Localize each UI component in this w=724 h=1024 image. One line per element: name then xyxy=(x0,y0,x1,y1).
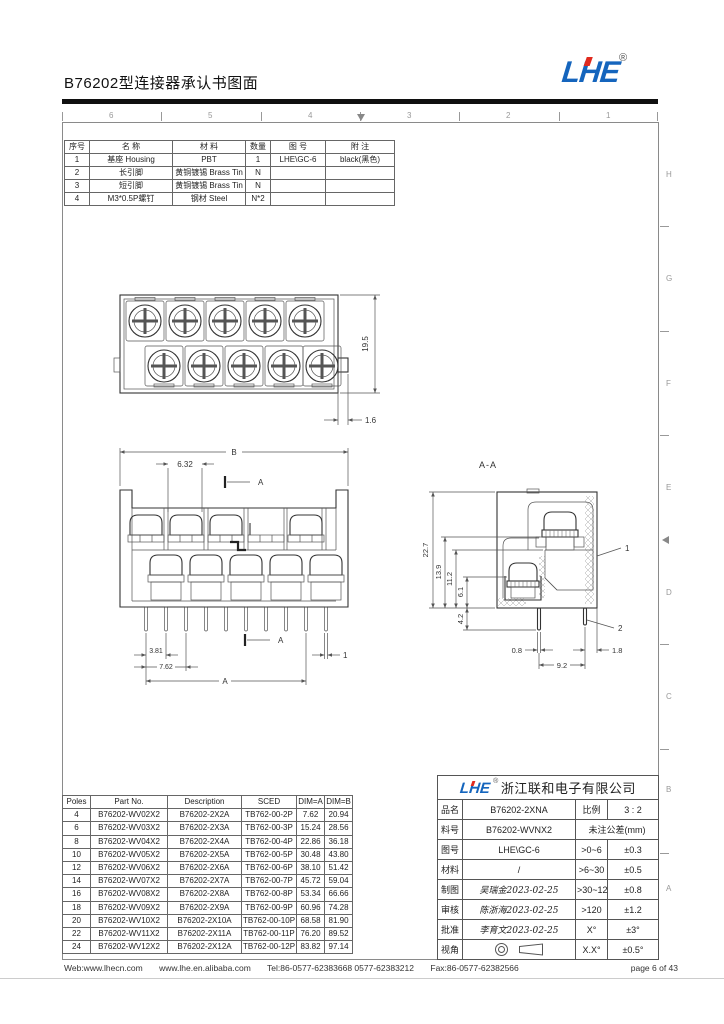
terminal-row-top xyxy=(128,515,324,542)
column-header: Poles xyxy=(63,796,91,809)
title-block-row: 料号 B76202-WVNX2 未注公差(mm) xyxy=(438,820,659,840)
dimension-label: 9.2 xyxy=(557,661,567,670)
table-cell: 97.14 xyxy=(325,941,353,954)
table-cell: B76202-2X4A xyxy=(168,835,242,848)
tolerance-range: >0~6 xyxy=(576,840,608,860)
table-cell: 20.94 xyxy=(325,809,353,822)
zone-label-top: 3 xyxy=(407,111,411,120)
table-row: 4B76202-WV02X2B76202-2X2ATB762-00-2P7.62… xyxy=(63,809,353,822)
table-cell: TB762-00-9P xyxy=(242,901,297,914)
title-block-row: 审核 陈浙海2023-02-25 >120 ±1.2 xyxy=(438,900,659,920)
zone-tick xyxy=(660,749,669,750)
table-cell: 43.80 xyxy=(325,848,353,861)
field-label: 制图 xyxy=(438,880,463,900)
zone-tick xyxy=(660,226,669,227)
column-header: Description xyxy=(168,796,242,809)
table-cell: TB762-00-10P xyxy=(242,914,297,927)
dimension-label: 22.7 xyxy=(421,543,430,558)
top-view-drawing: 19.5 1.6 xyxy=(98,278,398,438)
table-cell: M3*0.5P螺钉 xyxy=(90,193,173,206)
table-cell: 长引脚 xyxy=(90,167,173,180)
poles-table: PolesPart No.DescriptionSCEDDIM=ADIM=B 4… xyxy=(62,795,353,954)
company-logo: LHE® xyxy=(562,56,662,96)
table-cell: 基座 Housing xyxy=(90,154,173,167)
table-cell: N xyxy=(246,180,271,193)
table-cell: B76202-2X7A xyxy=(168,875,242,888)
tolerance-range: >6~30 xyxy=(576,860,608,880)
dimension-label: 6.32 xyxy=(177,460,193,469)
table-cell: 22 xyxy=(63,927,91,940)
table-cell: 1 xyxy=(65,154,90,167)
bom-table: 序号名 称材 料数量图 号附 注 1基座 HousingPBT1LHE\GC-6… xyxy=(64,140,395,206)
table-cell: B76202-WV10X2 xyxy=(91,914,168,927)
bom-header-row: 序号名 称材 料数量图 号附 注 xyxy=(65,141,395,154)
scale-value: 3 : 2 xyxy=(608,800,659,820)
table-cell: 4 xyxy=(65,193,90,206)
title-block-row: 图号 LHE\GC-6 >0~6 ±0.3 xyxy=(438,840,659,860)
table-cell xyxy=(271,167,326,180)
table-row: 24B76202-WV12X2B76202-2X12ATB762-00-12P8… xyxy=(63,941,353,954)
zone-tick xyxy=(660,331,669,332)
column-header: 材 料 xyxy=(173,141,246,154)
table-cell: 10 xyxy=(63,848,91,861)
page-number: page 6 of 43 xyxy=(631,963,678,973)
dimension-label: 7.62 xyxy=(159,664,173,671)
lhe-logo-icon: LHE xyxy=(459,780,491,797)
tolerance-value: ±0.3 xyxy=(608,840,659,860)
table-cell: B76202-WV08X2 xyxy=(91,888,168,901)
table-row: 18B76202-WV09X2B76202-2X9ATB762-00-9P60.… xyxy=(63,901,353,914)
front-view-drawing: B 6.32 A A 3.81 7.62 A 1 xyxy=(98,438,408,688)
callout-label: 2 xyxy=(618,624,623,633)
tolerance-value: ±1.2 xyxy=(608,900,659,920)
dimension-label: 1.6 xyxy=(365,416,377,425)
angle-tolerance-value: ±0.5° xyxy=(608,940,659,960)
table-cell: 53.34 xyxy=(297,888,325,901)
dimension-label: B xyxy=(231,448,236,457)
column-header: DIM=A xyxy=(297,796,325,809)
zone-label-right: F xyxy=(666,379,671,388)
zone-label-top: 5 xyxy=(208,111,212,120)
zone-tick xyxy=(660,435,669,436)
table-cell: 59.04 xyxy=(325,875,353,888)
dimension-label: 1.8 xyxy=(612,646,622,655)
zone-label-right: B xyxy=(666,785,671,794)
table-cell: B76202-2X11A xyxy=(168,927,242,940)
table-cell: TB762-00-12P xyxy=(242,941,297,954)
dimension-label: 19.5 xyxy=(361,336,370,352)
title-block-row: 批准 李育文2023-02-25 X° ±3° xyxy=(438,920,659,940)
table-cell: 黄铜镀锡 Brass Tin xyxy=(173,167,246,180)
table-row: 16B76202-WV08X2B76202-2X8ATB762-00-8P53.… xyxy=(63,888,353,901)
registered-mark: ® xyxy=(493,778,498,785)
table-row: 3短引脚黄铜镀锡 Brass TinN xyxy=(65,180,395,193)
table-cell: 8 xyxy=(63,835,91,848)
column-header: 附 注 xyxy=(326,141,395,154)
table-cell: B76202-WV11X2 xyxy=(91,927,168,940)
lower-screw xyxy=(505,563,541,600)
field-label: 材料 xyxy=(438,860,463,880)
table-cell: 3 xyxy=(65,180,90,193)
field-label: 图号 xyxy=(438,840,463,860)
zone-label-right: D xyxy=(666,588,672,597)
table-cell: 22.86 xyxy=(297,835,325,848)
table-row: 20B76202-WV10X2B76202-2X10ATB762-00-10P6… xyxy=(63,914,353,927)
table-cell: TB762-00-11P xyxy=(242,927,297,940)
table-cell: B76202-2X5A xyxy=(168,848,242,861)
zone-tick xyxy=(62,112,63,121)
table-cell: 6 xyxy=(63,822,91,835)
table-cell: B76202-2X10A xyxy=(168,914,242,927)
table-cell: 12 xyxy=(63,861,91,874)
drawn-by-signature: 吴瑞金2023-02-25 xyxy=(463,880,576,900)
centering-mark-right xyxy=(662,536,669,544)
drawing-number-value: LHE\GC-6 xyxy=(463,840,576,860)
screw-row-bottom xyxy=(145,346,341,387)
dimension-label: 4.2 xyxy=(456,614,465,624)
table-row: 14B76202-WV07X2B76202-2X7ATB762-00-7P45.… xyxy=(63,875,353,888)
dimension-label: 13.9 xyxy=(434,565,443,580)
table-cell: 钢材 Steel xyxy=(173,193,246,206)
projection-circle-icon xyxy=(495,943,508,956)
field-label: 比例 xyxy=(576,800,608,820)
table-cell: B76202-WV09X2 xyxy=(91,901,168,914)
table-row: 8B76202-WV04X2B76202-2X4ATB762-00-4P22.8… xyxy=(63,835,353,848)
table-cell: black(黑色) xyxy=(326,154,395,167)
table-cell xyxy=(326,193,395,206)
part-number-value: B76202-WVNX2 xyxy=(463,820,576,840)
zone-tick xyxy=(161,112,162,121)
zone-tick xyxy=(657,112,658,121)
angle-range: X° xyxy=(576,920,608,940)
title-block-row: 制图 吴瑞金2023-02-25 >30~120 ±0.8 xyxy=(438,880,659,900)
tolerance-value: ±0.8 xyxy=(608,880,659,900)
section-title: A-A xyxy=(479,460,497,470)
footer-web: Web:www.lhecn.com xyxy=(64,963,143,973)
dimension-label: 0.8 xyxy=(512,646,522,655)
title-block-row: 品名 B76202-2XNA 比例 3 : 2 xyxy=(438,800,659,820)
table-cell: B76202-WV12X2 xyxy=(91,941,168,954)
zone-label-top: 6 xyxy=(109,111,113,120)
table-cell: B76202-2X6A xyxy=(168,861,242,874)
table-cell: N*2 xyxy=(246,193,271,206)
table-row: 1基座 HousingPBT1LHE\GC-6black(黑色) xyxy=(65,154,395,167)
table-row: 12B76202-WV06X2B76202-2X6ATB762-00-6P38.… xyxy=(63,861,353,874)
screw-row-top xyxy=(126,298,324,342)
tolerance-range: >30~120 xyxy=(576,880,608,900)
dimension-label: 6.1 xyxy=(456,587,465,597)
table-row: 4M3*0.5P螺钉钢材 SteelN*2 xyxy=(65,193,395,206)
tolerance-value: ±0.5 xyxy=(608,860,659,880)
table-cell: B76202-WV07X2 xyxy=(91,875,168,888)
table-cell: 76.20 xyxy=(297,927,325,940)
column-header: Part No. xyxy=(91,796,168,809)
field-label: 料号 xyxy=(438,820,463,840)
table-cell: B76202-WV02X2 xyxy=(91,809,168,822)
table-row: 6B76202-WV03X2B76202-2X3ATB762-00-3P15.2… xyxy=(63,822,353,835)
table-cell: B76202-2X8A xyxy=(168,888,242,901)
table-cell: 7.62 xyxy=(297,809,325,822)
table-row: 2长引脚黄铜镀锡 Brass TinN xyxy=(65,167,395,180)
table-cell: 14 xyxy=(63,875,91,888)
footer-contact-info: Web:www.lhecn.com www.lhe.en.alibaba.com… xyxy=(64,963,533,973)
table-cell: 36.18 xyxy=(325,835,353,848)
lhe-logo-icon: LHE xyxy=(560,56,621,90)
section-label: A xyxy=(258,478,264,487)
header-rule xyxy=(62,99,658,104)
table-cell xyxy=(326,167,395,180)
table-cell: PBT xyxy=(173,154,246,167)
table-cell: TB762-00-6P xyxy=(242,861,297,874)
table-cell: 1 xyxy=(246,154,271,167)
table-cell: 51.42 xyxy=(325,861,353,874)
zone-label-right: A xyxy=(666,884,671,893)
table-cell: 68.58 xyxy=(297,914,325,927)
registered-mark: ® xyxy=(619,52,627,64)
zone-label-right: C xyxy=(666,692,672,701)
checked-by-signature: 陈浙海2023-02-25 xyxy=(463,900,576,920)
page-title: B76202型连接器承认书图面 xyxy=(64,72,258,93)
company-name: 浙江联和电子有限公司 xyxy=(501,781,636,796)
footer-tel: Tel:86-0577-62383668 0577-62383212 xyxy=(267,963,414,973)
terminal-row-bottom xyxy=(148,555,344,600)
column-header: DIM=B xyxy=(325,796,353,809)
column-header: SCED xyxy=(242,796,297,809)
table-cell: 15.24 xyxy=(297,822,325,835)
field-label: 品名 xyxy=(438,800,463,820)
zone-label-top: 2 xyxy=(506,111,510,120)
drawing-sheet-page: B76202型连接器承认书图面 LHE® 6 5 4 3 2 1 H G F E… xyxy=(0,0,724,1024)
upper-screw xyxy=(536,512,584,550)
field-label: 审核 xyxy=(438,900,463,920)
zone-label-right: H xyxy=(666,170,672,179)
table-cell: B76202-WV05X2 xyxy=(91,848,168,861)
footer-divider xyxy=(0,978,724,979)
column-header: 图 号 xyxy=(271,141,326,154)
angle-range: X.X° xyxy=(576,940,608,960)
table-cell: B76202-2X2A xyxy=(168,809,242,822)
approved-by-signature: 李育文2023-02-25 xyxy=(463,920,576,940)
table-cell: B76202-2X3A xyxy=(168,822,242,835)
table-cell: 81.90 xyxy=(325,914,353,927)
table-cell: 83.82 xyxy=(297,941,325,954)
angle-tolerance-value: ±3° xyxy=(608,920,659,940)
pins xyxy=(145,607,328,631)
table-cell: B76202-2X12A xyxy=(168,941,242,954)
table-cell: 28.56 xyxy=(325,822,353,835)
field-label: 视角 xyxy=(438,940,463,960)
column-header: 数量 xyxy=(246,141,271,154)
table-cell: 短引脚 xyxy=(90,180,173,193)
zone-label-right: E xyxy=(666,483,671,492)
table-cell: 60.96 xyxy=(297,901,325,914)
table-cell: 30.48 xyxy=(297,848,325,861)
table-cell: 18 xyxy=(63,901,91,914)
zone-tick xyxy=(559,112,560,121)
zone-tick xyxy=(660,853,669,854)
zone-label-top: 4 xyxy=(308,111,312,120)
callout-label: 1 xyxy=(625,544,630,553)
table-cell xyxy=(271,193,326,206)
table-cell: 45.72 xyxy=(297,875,325,888)
title-block-row: 材料 / >6~30 ±0.5 xyxy=(438,860,659,880)
table-cell: 16 xyxy=(63,888,91,901)
table-row: 10B76202-WV05X2B76202-2X5ATB762-00-5P30.… xyxy=(63,848,353,861)
table-cell: TB762-00-8P xyxy=(242,888,297,901)
table-cell: LHE\GC-6 xyxy=(271,154,326,167)
dimension-label: 3.81 xyxy=(149,648,163,655)
table-row: 22B76202-WV11X2B76202-2X11ATB762-00-11P7… xyxy=(63,927,353,940)
title-block-company-row: LHE® 浙江联和电子有限公司 xyxy=(438,776,659,800)
table-cell: TB762-00-5P xyxy=(242,848,297,861)
dimension-label: 11.2 xyxy=(445,572,454,586)
footer-alibaba: www.lhe.en.alibaba.com xyxy=(159,963,251,973)
dimension-label: A xyxy=(222,677,228,686)
title-block: LHE® 浙江联和电子有限公司 品名 B76202-2XNA 比例 3 : 2 … xyxy=(437,775,659,960)
section-label: A xyxy=(278,636,284,645)
table-cell: 20 xyxy=(63,914,91,927)
poles-header-row: PolesPart No.DescriptionSCEDDIM=ADIM=B xyxy=(63,796,353,809)
table-cell xyxy=(271,180,326,193)
projection-cone-icon xyxy=(518,943,544,956)
table-cell: TB762-00-4P xyxy=(242,835,297,848)
column-header: 序号 xyxy=(65,141,90,154)
table-cell xyxy=(326,180,395,193)
table-cell: 89.52 xyxy=(325,927,353,940)
column-header: 名 称 xyxy=(90,141,173,154)
table-cell: B76202-2X9A xyxy=(168,901,242,914)
table-cell: 4 xyxy=(63,809,91,822)
table-cell: 74.28 xyxy=(325,901,353,914)
table-cell: B76202-WV04X2 xyxy=(91,835,168,848)
centering-mark-top xyxy=(357,114,365,121)
zone-label-top: 1 xyxy=(606,111,610,120)
table-cell: 黄铜镀锡 Brass Tin xyxy=(173,180,246,193)
table-cell: 66.66 xyxy=(325,888,353,901)
tolerance-range: >120 xyxy=(576,900,608,920)
table-cell: TB762-00-2P xyxy=(242,809,297,822)
material-value: / xyxy=(463,860,576,880)
section-view-drawing: A-A 22.7 13.9 11.2 xyxy=(408,438,663,688)
field-label: 批准 xyxy=(438,920,463,940)
table-cell: B76202-WV03X2 xyxy=(91,822,168,835)
table-cell: 2 xyxy=(65,167,90,180)
dimension-label: 1 xyxy=(343,651,348,660)
table-cell: 24 xyxy=(63,941,91,954)
tolerance-title: 未注公差(mm) xyxy=(576,820,659,840)
zone-label-right: G xyxy=(666,274,672,283)
zone-tick xyxy=(261,112,262,121)
title-block-row: 视角 X.X° ±0.5° xyxy=(438,940,659,960)
table-cell: TB762-00-3P xyxy=(242,822,297,835)
zone-tick xyxy=(459,112,460,121)
footer-fax: Fax:86-0577-62382566 xyxy=(430,963,518,973)
table-cell: N xyxy=(246,167,271,180)
table-cell: 38.10 xyxy=(297,861,325,874)
product-name-value: B76202-2XNA xyxy=(463,800,576,820)
table-cell: B76202-WV06X2 xyxy=(91,861,168,874)
table-cell: TB762-00-7P xyxy=(242,875,297,888)
